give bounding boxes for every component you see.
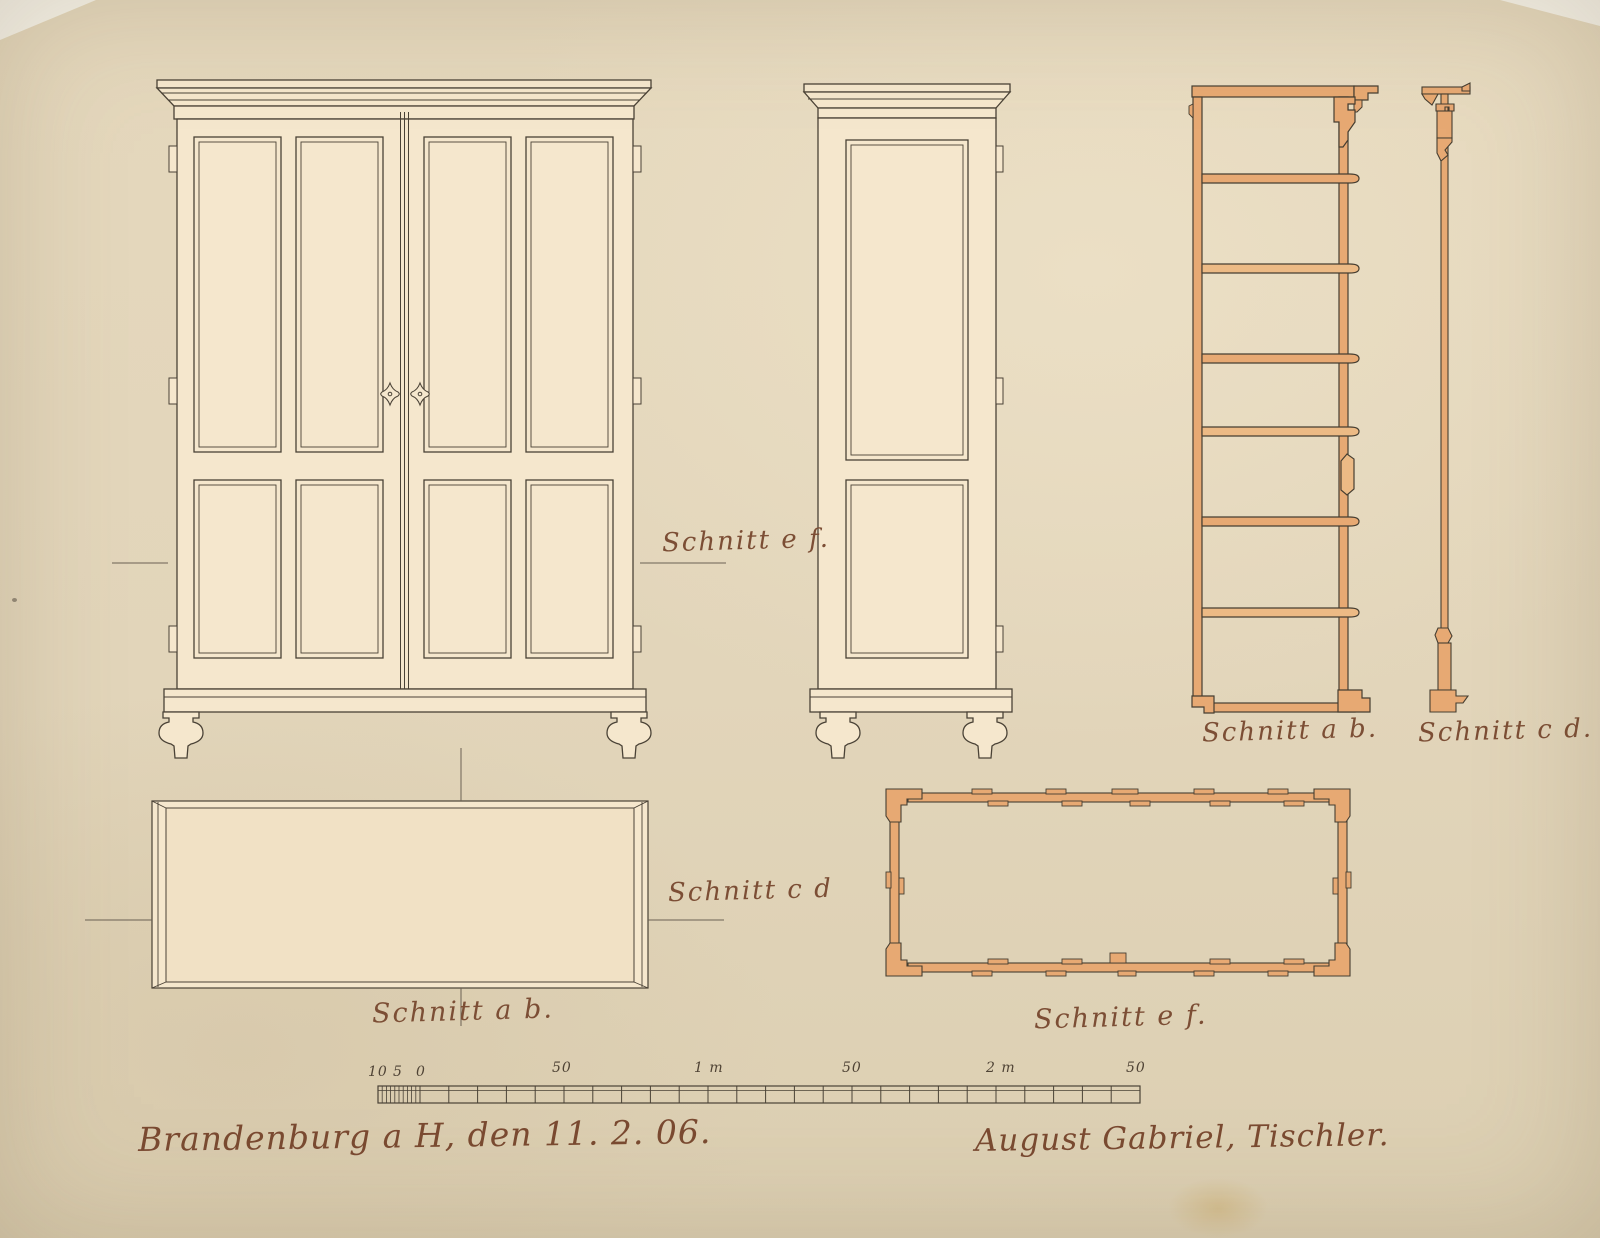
label-schnitt-cd-plan: Schnitt c d [668,874,834,909]
section-ab-vertical [1189,86,1378,713]
technical-drawing [0,0,1600,1238]
plan-view-top [152,801,648,988]
cornice-profile [1354,86,1378,100]
drawing-sheet: Schnitt e f. Schnitt c d Schnitt a b. Sc… [0,0,1600,1238]
side-rail-joints [886,872,1351,894]
scale-label-1m: 1 m [694,1060,724,1076]
label-schnitt-ef-plan: Schnitt e f. [1034,1000,1208,1036]
scale-bar [378,1086,1140,1103]
side-back-foot [963,712,1007,758]
scale-label-50c: 50 [1126,1060,1146,1076]
fine-ticks [378,1086,416,1103]
label-schnitt-cd-section: Schnitt c d. [1418,714,1594,749]
corner-post [1314,943,1350,976]
front-right-foot [607,712,651,758]
side-elevation [804,84,1012,758]
section-cd-vertical [1422,83,1470,712]
front-elevation [157,80,651,758]
side-front-foot [816,712,860,758]
scale-label-0: 0 [416,1064,426,1080]
right-stile-top-joint [1334,97,1355,147]
scale-label-50b: 50 [842,1060,862,1076]
scale-label-10: 10 [368,1064,388,1080]
label-schnitt-ab-section: Schnitt a b. [1202,714,1379,749]
side-hinges [996,146,1003,652]
scale-label-2m: 2 m [986,1060,1016,1076]
lock-joint [1341,454,1354,495]
front-left-foot [159,712,203,758]
corner-post [1314,789,1350,822]
section-ef-horizontal [886,789,1351,976]
corner-post [886,943,922,976]
shelves [1202,174,1359,617]
scale-label-5: 5 [393,1064,403,1080]
corner-post [886,789,922,822]
label-schnitt-ab-plan: Schnitt a b. [372,993,555,1029]
label-schnitt-ef-upper: Schnitt e f. [662,524,831,559]
signature-inscription: August Gabriel, Tischler. [975,1117,1390,1159]
place-date-inscription: Brandenburg a H, den 11. 2. 06. [138,1112,712,1159]
scale-label-50a: 50 [552,1060,572,1076]
